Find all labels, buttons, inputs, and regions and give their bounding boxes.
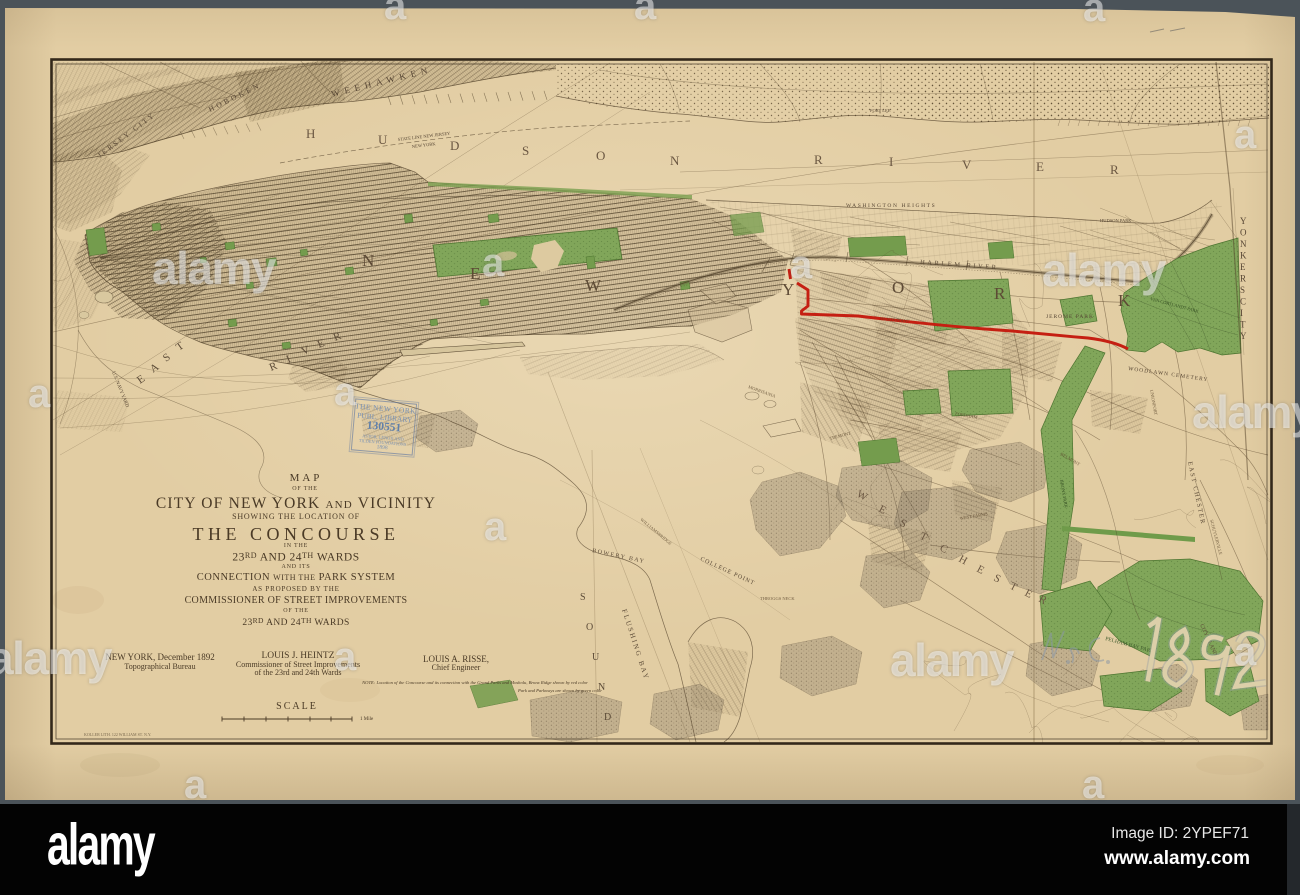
svg-text:U: U — [378, 132, 388, 147]
svg-text:NEW YORK: NEW YORK — [412, 141, 437, 149]
svg-text:UNIONPORT: UNIONPORT — [1149, 389, 1158, 415]
svg-text:O: O — [1240, 228, 1247, 238]
svg-text:S: S — [522, 143, 529, 158]
svg-text:C: C — [1240, 297, 1246, 307]
svg-text:S: S — [992, 572, 1003, 585]
svg-text:E: E — [1036, 159, 1044, 174]
svg-text:I: I — [889, 154, 893, 169]
svg-text:V: V — [962, 157, 972, 172]
svg-text:THROGGS NECK: THROGGS NECK — [760, 596, 795, 601]
svg-text:E: E — [975, 563, 987, 577]
svg-text:WILLIAMSBRIDGE: WILLIAMSBRIDGE — [639, 517, 672, 546]
svg-text:Y: Y — [1240, 331, 1247, 341]
svg-text:COLLEGE POINT: COLLEGE POINT — [699, 556, 755, 587]
svg-text:JEROME PARK: JEROME PARK — [1046, 314, 1094, 320]
svg-text:E: E — [135, 373, 148, 387]
svg-text:T: T — [1240, 320, 1246, 330]
svg-text:D: D — [450, 138, 459, 153]
svg-text:R: R — [1240, 274, 1246, 284]
svg-text:R: R — [994, 284, 1006, 303]
svg-text:N: N — [670, 153, 680, 168]
svg-text:S: S — [161, 351, 173, 364]
svg-text:K: K — [1240, 251, 1247, 261]
svg-text:HUDSON PARK: HUDSON PARK — [1100, 218, 1132, 223]
svg-text:WOODLAWN CEMETERY: WOODLAWN CEMETERY — [1128, 366, 1209, 383]
svg-text:S: S — [580, 592, 586, 603]
svg-text:1 Mile: 1 Mile — [360, 717, 374, 722]
svg-text:O: O — [596, 148, 605, 163]
svg-text:O: O — [892, 278, 904, 297]
svg-text:W: W — [585, 276, 602, 295]
svg-text:E: E — [1023, 587, 1035, 601]
svg-text:WASHINGTON HEIGHTS: WASHINGTON HEIGHTS — [846, 203, 936, 209]
svg-text:E: E — [470, 264, 480, 283]
svg-text:T: T — [174, 340, 187, 354]
svg-text:D: D — [604, 712, 611, 723]
svg-text:N: N — [1240, 239, 1247, 249]
svg-text:A: A — [148, 361, 161, 375]
svg-text:EAST CHESTER: EAST CHESTER — [1186, 461, 1206, 526]
svg-text:E: E — [1240, 262, 1246, 272]
svg-text:H: H — [306, 126, 315, 141]
svg-text:FORT LEE: FORT LEE — [870, 108, 891, 113]
svg-text:Y: Y — [1240, 216, 1247, 226]
svg-text:MORRISANIA: MORRISANIA — [748, 384, 777, 399]
svg-text:SCHUYLERVILLE: SCHUYLERVILLE — [1209, 519, 1223, 556]
svg-text:KOLLER LITH. 122 WILLIAM ST. N: KOLLER LITH. 122 WILLIAM ST. N.Y. — [84, 732, 151, 737]
svg-text:O: O — [586, 622, 593, 633]
svg-text:R: R — [1110, 162, 1119, 177]
svg-text:U: U — [592, 652, 600, 663]
svg-text:I: I — [1240, 308, 1243, 318]
svg-text:BOWERY BAY: BOWERY BAY — [592, 548, 646, 565]
svg-text:FLUSHING BAY: FLUSHING BAY — [620, 608, 651, 681]
svg-text:N: N — [362, 251, 374, 270]
svg-text:R: R — [814, 152, 823, 167]
svg-text:S: S — [1240, 285, 1245, 295]
